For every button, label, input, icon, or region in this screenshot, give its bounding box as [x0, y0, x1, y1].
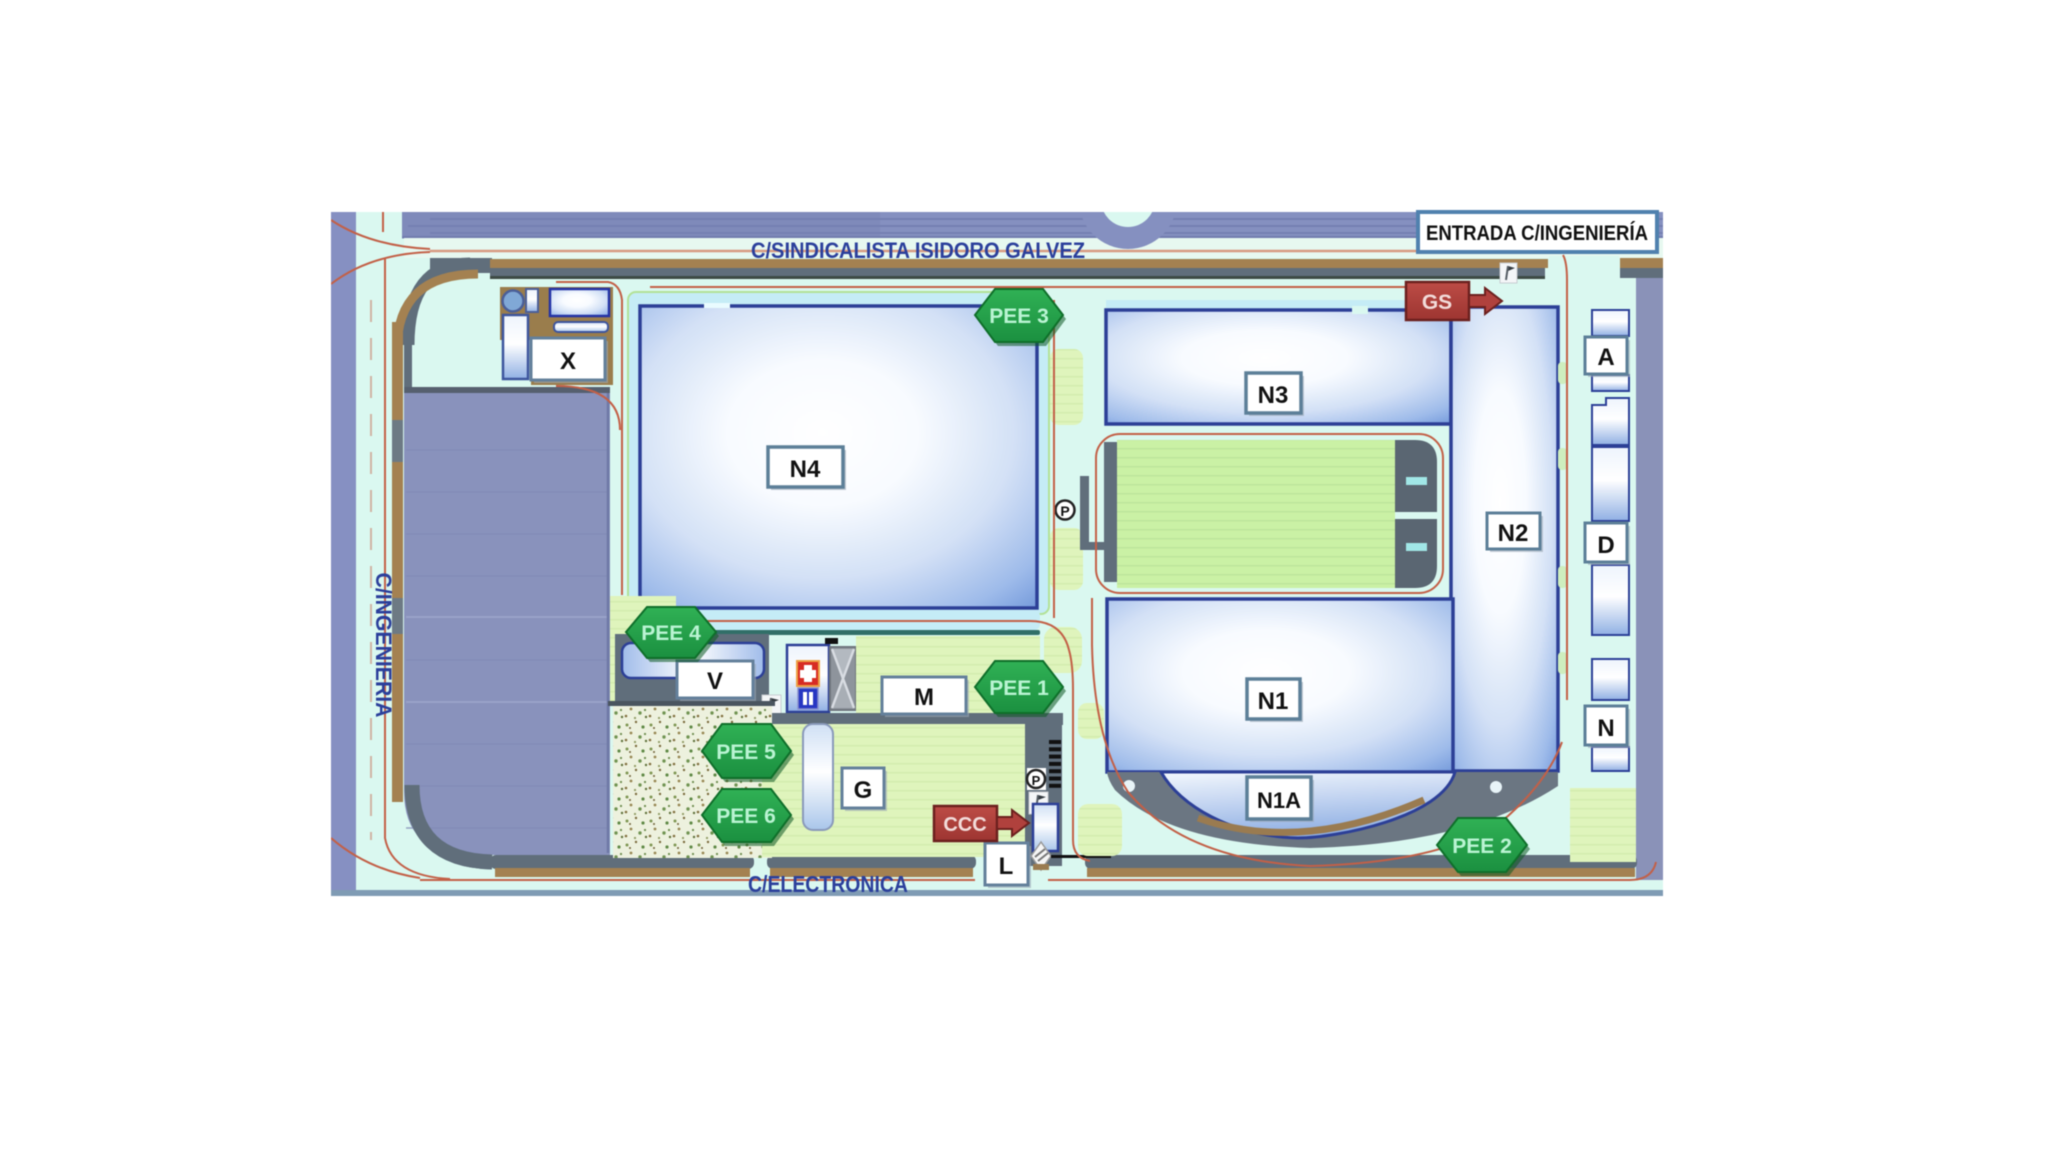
svg-text:A: A	[1597, 344, 1614, 371]
svg-text:P: P	[1060, 503, 1069, 519]
svg-text:PEE 1: PEE 1	[989, 677, 1049, 700]
svg-text:L: L	[999, 853, 1014, 880]
svg-text:CCC: CCC	[943, 814, 986, 836]
svg-text:PEE 5: PEE 5	[716, 741, 776, 764]
svg-text:GS: GS	[1422, 291, 1452, 314]
svg-text:N1: N1	[1258, 688, 1289, 715]
svg-text:M: M	[914, 684, 934, 711]
svg-text:N2: N2	[1498, 520, 1529, 547]
svg-text:N3: N3	[1258, 382, 1289, 409]
svg-text:C/ELECTRONICA: C/ELECTRONICA	[748, 871, 908, 897]
svg-text:D: D	[1597, 532, 1614, 559]
svg-text:N4: N4	[790, 456, 821, 483]
svg-text:V: V	[707, 668, 723, 695]
svg-text:N: N	[1597, 715, 1614, 742]
svg-text:C/SINDICALISTA ISIDORO GALVEZ: C/SINDICALISTA ISIDORO GALVEZ	[751, 238, 1085, 263]
svg-text:PEE 3: PEE 3	[989, 305, 1049, 328]
svg-text:PEE 2: PEE 2	[1452, 835, 1512, 858]
svg-text:G: G	[854, 777, 873, 804]
svg-text:C/INGENIERIA: C/INGENIERIA	[371, 573, 396, 718]
svg-text:N1A: N1A	[1257, 788, 1301, 813]
svg-text:PEE 4: PEE 4	[641, 622, 701, 645]
svg-text:P: P	[1032, 773, 1041, 788]
svg-text:PEE 6: PEE 6	[716, 805, 776, 828]
svg-text:X: X	[560, 348, 576, 375]
svg-text:ENTRADA C/INGENIERÍA: ENTRADA C/INGENIERÍA	[1426, 222, 1648, 245]
